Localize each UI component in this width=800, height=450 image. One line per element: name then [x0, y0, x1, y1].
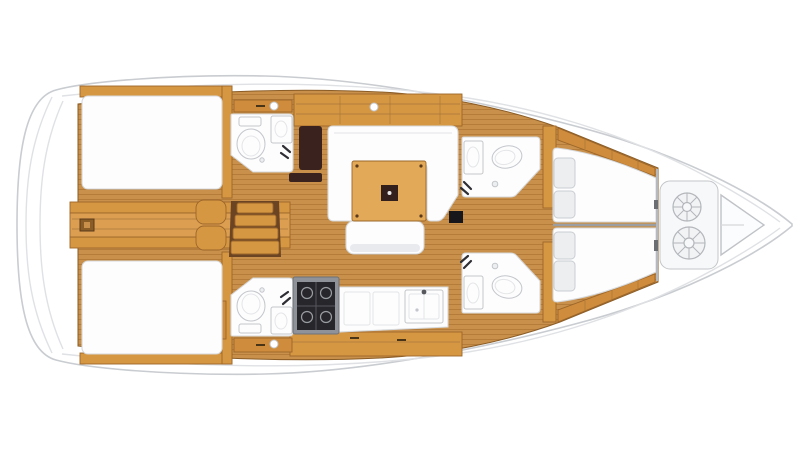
- shower-drain: [260, 158, 264, 162]
- bench-front-shading: [350, 244, 420, 252]
- handle: [350, 337, 359, 339]
- saloon-table: [352, 161, 426, 221]
- aft-stbd-bed-beam: [80, 353, 232, 364]
- companionway-seat-bottom: [196, 226, 226, 250]
- deck-hatch: [270, 340, 278, 348]
- step-4: [231, 241, 279, 254]
- pin: [419, 214, 422, 217]
- locker-hinge: [654, 240, 658, 251]
- toilet-bowl: [237, 129, 265, 159]
- black-locker: [449, 211, 463, 223]
- galley-cabinet-band: [290, 332, 462, 356]
- handle: [397, 339, 406, 341]
- rope-center: [683, 203, 692, 212]
- shower-drain: [260, 288, 264, 292]
- basin-unit: [271, 307, 292, 334]
- toilet-tank: [239, 117, 261, 126]
- pillow: [554, 261, 575, 291]
- step-2: [235, 215, 276, 226]
- nav-seat-cushion: [299, 126, 322, 170]
- rope-coil-bottom: [673, 227, 705, 259]
- pin: [355, 214, 358, 217]
- toilet-tank: [239, 324, 261, 333]
- anchor-locker: [654, 169, 764, 281]
- pin: [419, 164, 422, 167]
- saloon-top-shelf: [294, 94, 462, 126]
- rope-center: [684, 238, 694, 248]
- floor-plan-canvas: [0, 0, 800, 450]
- toilet-aft-starboard: [237, 291, 265, 333]
- walkway-latch-center: [84, 222, 90, 228]
- nav-seat-step: [289, 173, 322, 182]
- pillow: [554, 191, 575, 218]
- locker-hinge: [654, 200, 658, 209]
- aft-starboard-berth: [82, 261, 222, 354]
- yacht-floor-plan: [0, 0, 800, 450]
- step-3: [233, 228, 278, 239]
- aft-port-berth: [82, 96, 222, 189]
- shower-drain: [492, 263, 498, 269]
- companionway-seat-top: [196, 200, 226, 224]
- pillow: [554, 232, 575, 259]
- deck-hatch: [270, 102, 278, 110]
- basin-unit: [271, 116, 292, 143]
- step-1: [237, 203, 273, 213]
- galley-stove: [293, 277, 339, 334]
- pin: [355, 164, 358, 167]
- toilet-aft-port: [237, 117, 265, 159]
- handle: [256, 105, 265, 107]
- aft-port-bed-beam: [80, 86, 232, 97]
- shower-drain: [492, 181, 498, 187]
- toilet-bowl: [237, 291, 265, 321]
- pillow: [554, 158, 575, 188]
- rope-coil-top: [673, 193, 701, 221]
- sink-drain: [415, 308, 418, 311]
- handle: [256, 344, 265, 346]
- deck-hatch: [370, 103, 378, 111]
- table-center-dot: [388, 191, 392, 195]
- galley-faucet: [422, 290, 427, 295]
